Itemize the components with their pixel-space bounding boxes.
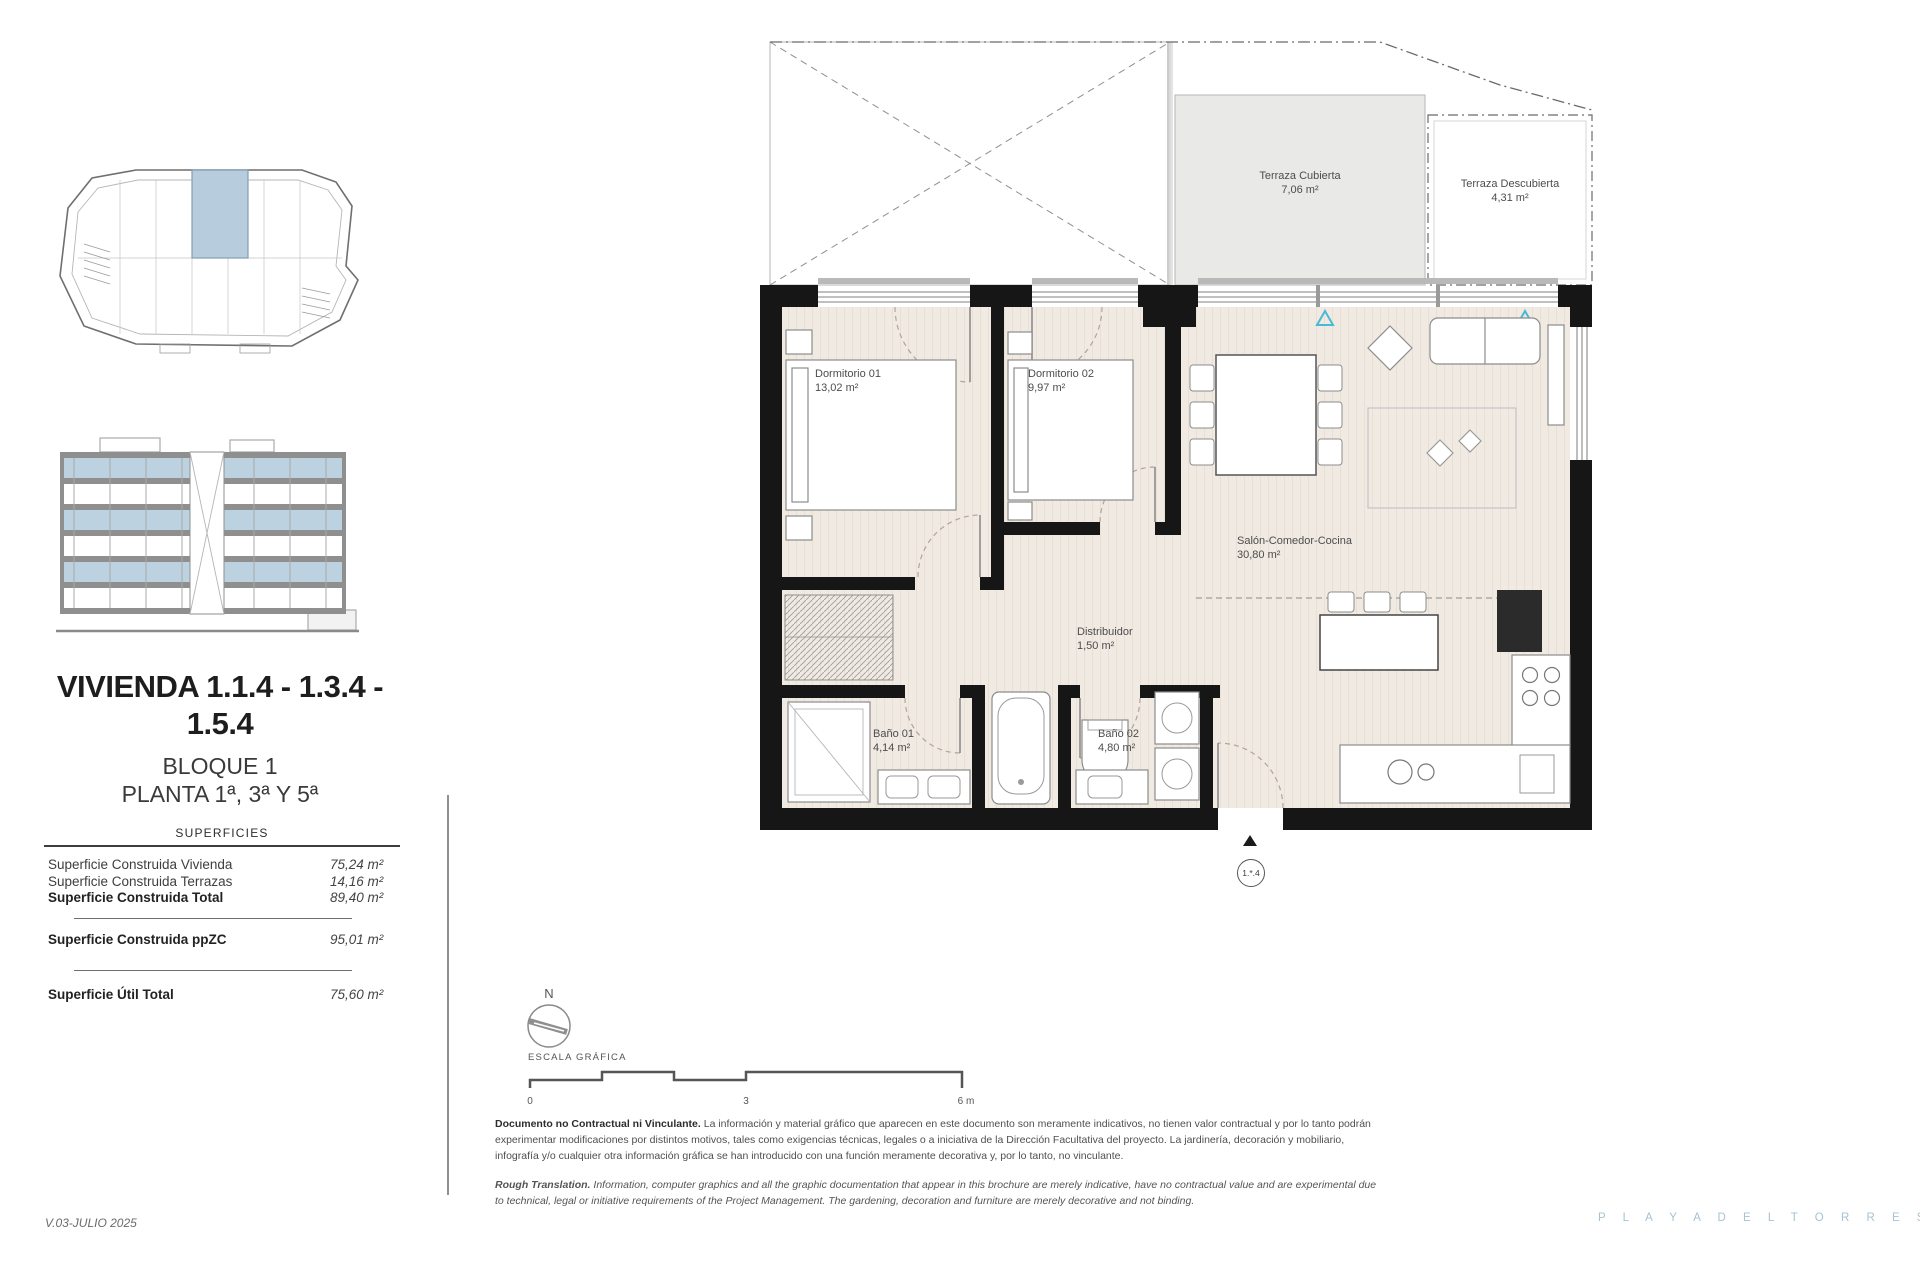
compass-and-scale: N ESCALA GRÁFICA 0 3 6 m [430,980,990,1115]
disclaimer-en-lead: Rough Translation. [495,1179,590,1191]
floors-label: PLANTA 1ª, 3ª Y 5ª [10,780,430,808]
document-version: V.03-JULIO 2025 [45,1216,137,1230]
room-label-bano-02: Baño 02 4,80 m² [1098,728,1139,755]
room-label-dormitorio-02: Dormitorio 02 9,97 m² [1028,368,1094,395]
scale-tick-0: 0 [527,1096,533,1107]
surface-row-total: Superficie Construida Total 89,40 m² [44,890,400,907]
surfaces-header: SUPERFICIES [44,826,400,847]
surface-row-terrazas: Superficie Construida Terrazas 14,16 m² [44,874,400,891]
unit-title-line1: VIVIENDA 1.1.4 - 1.3.4 - [10,668,430,705]
wardrobe [785,595,893,680]
disclaimer-es-lead: Documento no Contractual ni Vinculante. [495,1118,704,1130]
floor-plan: Terraza Cubierta 7,06 m² Terraza Descubi… [740,30,1640,910]
room-label-dormitorio-01: Dormitorio 01 13,02 m² [815,368,881,395]
table-divider [74,918,352,919]
unit-subtitle: BLOQUE 1 PLANTA 1ª, 3ª Y 5ª [10,752,430,808]
table-divider [74,970,352,971]
surface-row-ppzc: Superficie Construida ppZC 95,01 m² [44,932,400,949]
section-divider [447,795,449,1195]
legal-disclaimer: Documento no Contractual ni Vinculante.L… [495,1116,1387,1209]
unit-title: VIVIENDA 1.1.4 - 1.3.4 - 1.5.4 [10,668,430,742]
site-plan-figure [40,148,370,418]
disclaimer-en-body: Information, computer graphics and all t… [495,1179,1376,1207]
unit-marker-badge: 1.*.4 [1237,859,1265,887]
unit-title-line2: 1.5.4 [10,705,430,742]
room-label-distribuidor: Distribuidor 1,50 m² [1077,626,1133,653]
scale-title: ESCALA GRÁFICA [528,1052,627,1063]
room-label-terraza-descubierta: Terraza Descubierta 4,31 m² [1428,178,1592,205]
building-elevation-figure [50,430,365,645]
project-brand: P L A Y A D E L T O R R E S [1598,1212,1920,1224]
surface-row-util: Superficie Útil Total 75,60 m² [44,987,400,1004]
scale-bar [530,1072,962,1088]
entry-arrow-icon [1243,835,1257,846]
surface-row-vivienda: Superficie Construida Vivienda 75,24 m² [44,857,400,874]
floor-plan-drawing [740,30,1640,910]
north-label: N [544,986,553,1001]
block-label: BLOQUE 1 [10,752,430,780]
surfaces-table: SUPERFICIES Superficie Construida Vivien… [44,826,400,1004]
scale-tick-6m: 6 m [958,1096,975,1107]
room-label-bano-01: Baño 01 4,14 m² [873,728,914,755]
room-label-terraza-cubierta: Terraza Cubierta 7,06 m² [1175,170,1425,197]
room-label-salon: Salón-Comedor-Cocina 30,80 m² [1237,535,1352,562]
disclaimer-en: Rough Translation. Information, computer… [495,1177,1387,1209]
highlighted-unit [192,170,248,258]
brochure-page: VIVIENDA 1.1.4 - 1.3.4 - 1.5.4 BLOQUE 1 … [0,0,1920,1280]
dining-set [1190,355,1342,475]
scale-tick-3: 3 [743,1096,749,1107]
